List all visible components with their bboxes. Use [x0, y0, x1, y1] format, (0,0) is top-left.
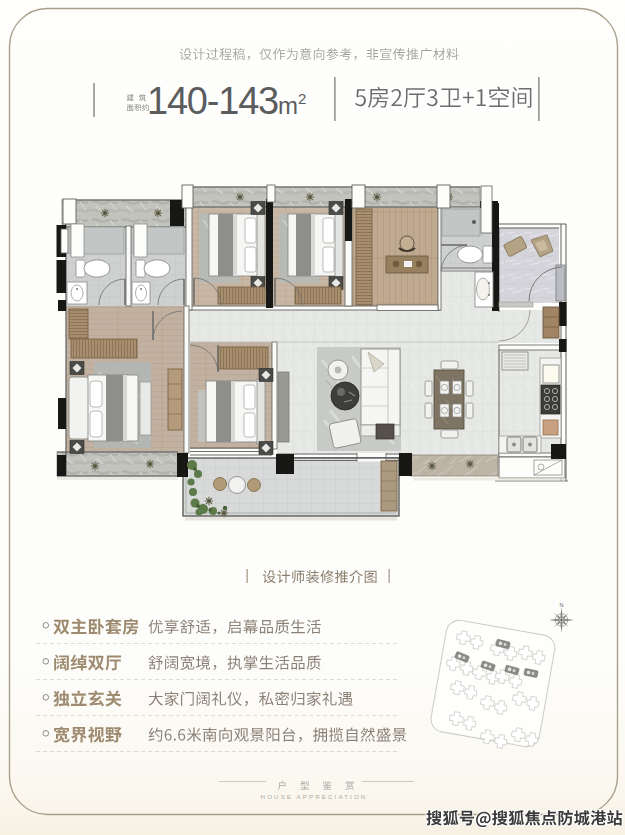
svg-text:HOUSE APPRECIATION: HOUSE APPRECIATION	[261, 793, 368, 800]
svg-text:140-143m2: 140-143m2	[147, 80, 306, 122]
svg-text:N: N	[560, 602, 564, 608]
